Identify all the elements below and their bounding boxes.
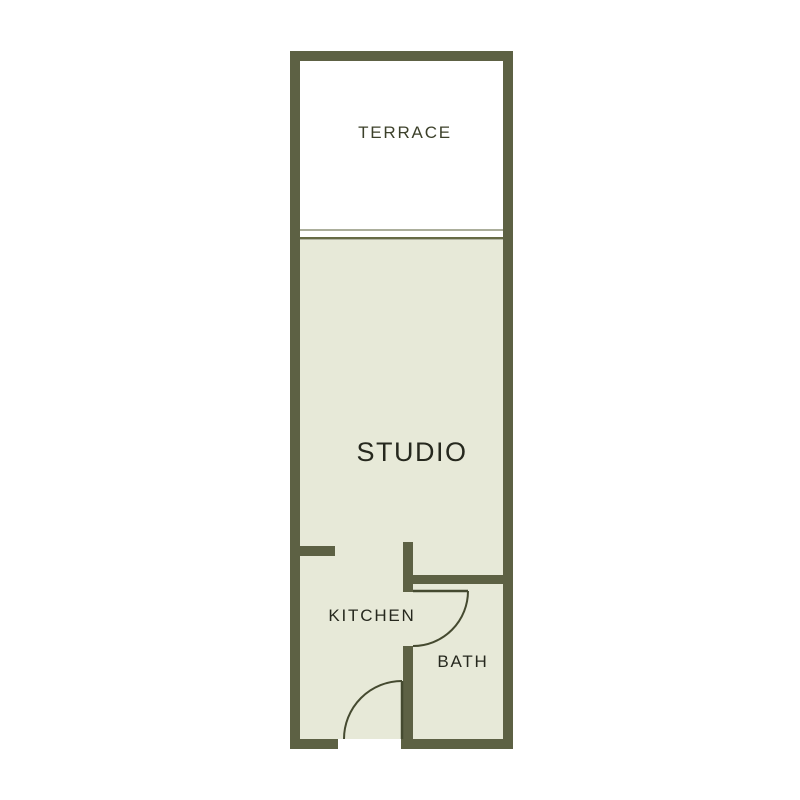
terrace-divider-light-line <box>300 229 503 231</box>
terrace-divider-dark-line <box>300 237 503 240</box>
bath-wall-vertical-upper <box>403 542 413 592</box>
outer-wall-top <box>290 51 513 61</box>
terrace-label: TERRACE <box>358 123 452 142</box>
kitchen-stub-wall <box>290 546 335 556</box>
bath-wall-horizontal <box>413 575 513 584</box>
bath-label: BATH <box>437 652 488 671</box>
studio-label: STUDIO <box>356 437 467 467</box>
outer-wall-bottom-right-segment <box>401 739 513 749</box>
outer-wall-right <box>503 51 513 749</box>
floor-plan: TERRACE STUDIO KITCHEN BATH <box>0 0 800 800</box>
page-background: TERRACE STUDIO KITCHEN BATH <box>0 0 800 800</box>
outer-wall-bottom-left-segment <box>290 739 338 749</box>
terrace-area <box>300 61 503 230</box>
outer-wall-left <box>290 51 300 749</box>
bath-wall-vertical-lower <box>403 646 413 749</box>
kitchen-label: KITCHEN <box>328 606 415 625</box>
